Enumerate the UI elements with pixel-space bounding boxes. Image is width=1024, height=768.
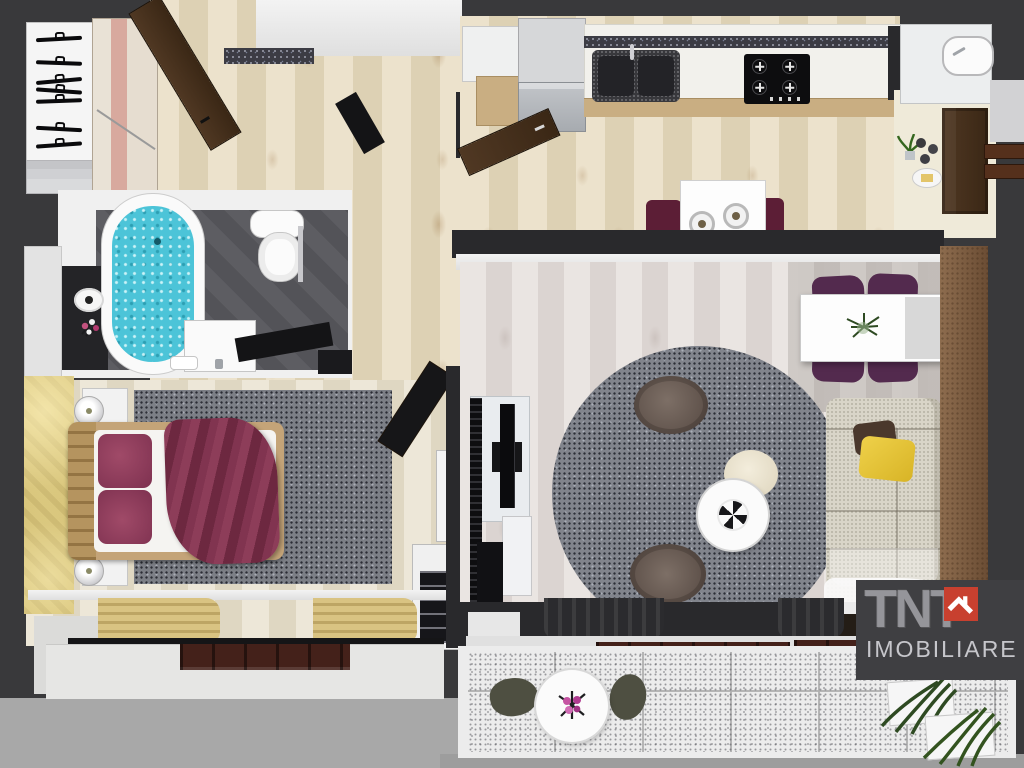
- double-sink: [592, 50, 680, 102]
- door-handle: [200, 116, 210, 124]
- front-door: [942, 108, 988, 214]
- plate-icon: [723, 203, 749, 229]
- toilet-paper-holder: [74, 288, 104, 312]
- bed-pillow-burgundy: [98, 490, 152, 544]
- bed-blanket-burgundy: [163, 416, 280, 566]
- door-handle: [534, 124, 544, 131]
- hanger-icon: [36, 98, 82, 104]
- hanger-icon: [36, 141, 82, 148]
- bistro-table: [536, 670, 608, 742]
- burner-icon: [782, 59, 797, 74]
- bathtub-drain: [154, 238, 161, 245]
- soap-dish: [170, 356, 198, 370]
- lamp-bottom: [74, 556, 104, 586]
- gas-cooktop: [744, 54, 810, 104]
- tv-screen: [500, 404, 514, 508]
- dining-table: [800, 294, 950, 362]
- glitter-doormat: [224, 48, 314, 64]
- bathroom-left-window-sill: [24, 246, 62, 378]
- faucet-icon: [630, 44, 634, 60]
- toilet-bowl: [258, 232, 302, 282]
- flower-vase-icon: [553, 686, 591, 724]
- cooktop-knobs: [770, 97, 800, 101]
- nook-washbasin: [942, 36, 994, 76]
- kitchen-left-cabinet: [462, 26, 522, 82]
- nook-side-panel: [990, 80, 1024, 142]
- burner-icon: [782, 80, 797, 95]
- pouf-top: [634, 376, 708, 434]
- coat-rail: [984, 164, 1024, 179]
- faucet-icon: [215, 359, 223, 369]
- sofa-seam: [826, 510, 942, 512]
- paper-core: [85, 296, 93, 304]
- media-shelf: [502, 516, 532, 596]
- balcony-curtain-right: [778, 598, 844, 638]
- kitchen-left-counter: [476, 76, 522, 126]
- planter-plant-icon: [914, 698, 1010, 768]
- wardrobe-lower-shelf: [26, 160, 96, 194]
- snack: [921, 174, 933, 182]
- coat-rail: [984, 144, 1024, 159]
- watermark-row: TNT: [864, 582, 978, 636]
- flower-decor-icon: [76, 312, 104, 340]
- nook-tray: [912, 168, 942, 188]
- house-logo-icon: [944, 587, 978, 621]
- clothes-rail: [96, 109, 155, 150]
- bathroom-door-wall-stub: [318, 350, 352, 374]
- floor-plan-render: TNT IMOBILIARE: [0, 0, 1024, 768]
- centerpiece-plant-icon: [843, 309, 885, 345]
- hanger-icon: [36, 60, 82, 66]
- open-wardrobe: [26, 22, 96, 162]
- coffee-table: [698, 480, 768, 550]
- towel-rail: [298, 226, 303, 282]
- bedroom-window-frame: [180, 644, 350, 670]
- fridge-top: [518, 18, 586, 86]
- hanger-icon: [36, 36, 82, 42]
- outside-ground-bottom-left: [0, 698, 470, 768]
- bedroom-curtain-left: [98, 598, 220, 642]
- balcony-curtain-left: [544, 598, 664, 638]
- nook-cups: [916, 138, 926, 148]
- burner-icon: [752, 80, 767, 95]
- watermark-block: TNT IMOBILIARE: [856, 580, 1024, 680]
- hanger-icon: [36, 126, 82, 132]
- sofa-yellow-cushion: [858, 435, 916, 482]
- headboard: [68, 422, 96, 560]
- sink-basin-left: [598, 56, 634, 96]
- bedroom-curtain-right: [313, 598, 417, 642]
- sink-basin-right: [638, 56, 674, 96]
- pinwheel-decor-icon: [719, 501, 747, 529]
- bathtub-water: [112, 206, 194, 362]
- bed-pillow-burgundy: [98, 434, 152, 488]
- bedroom-yellow-accent-wall: [24, 376, 74, 614]
- watermark-word: IMOBILIARE: [866, 636, 1018, 663]
- faucet-icon: [952, 47, 966, 57]
- burner-icon: [752, 59, 767, 74]
- pouf-bottom: [630, 544, 706, 604]
- living-brown-accent-wall: [940, 246, 988, 590]
